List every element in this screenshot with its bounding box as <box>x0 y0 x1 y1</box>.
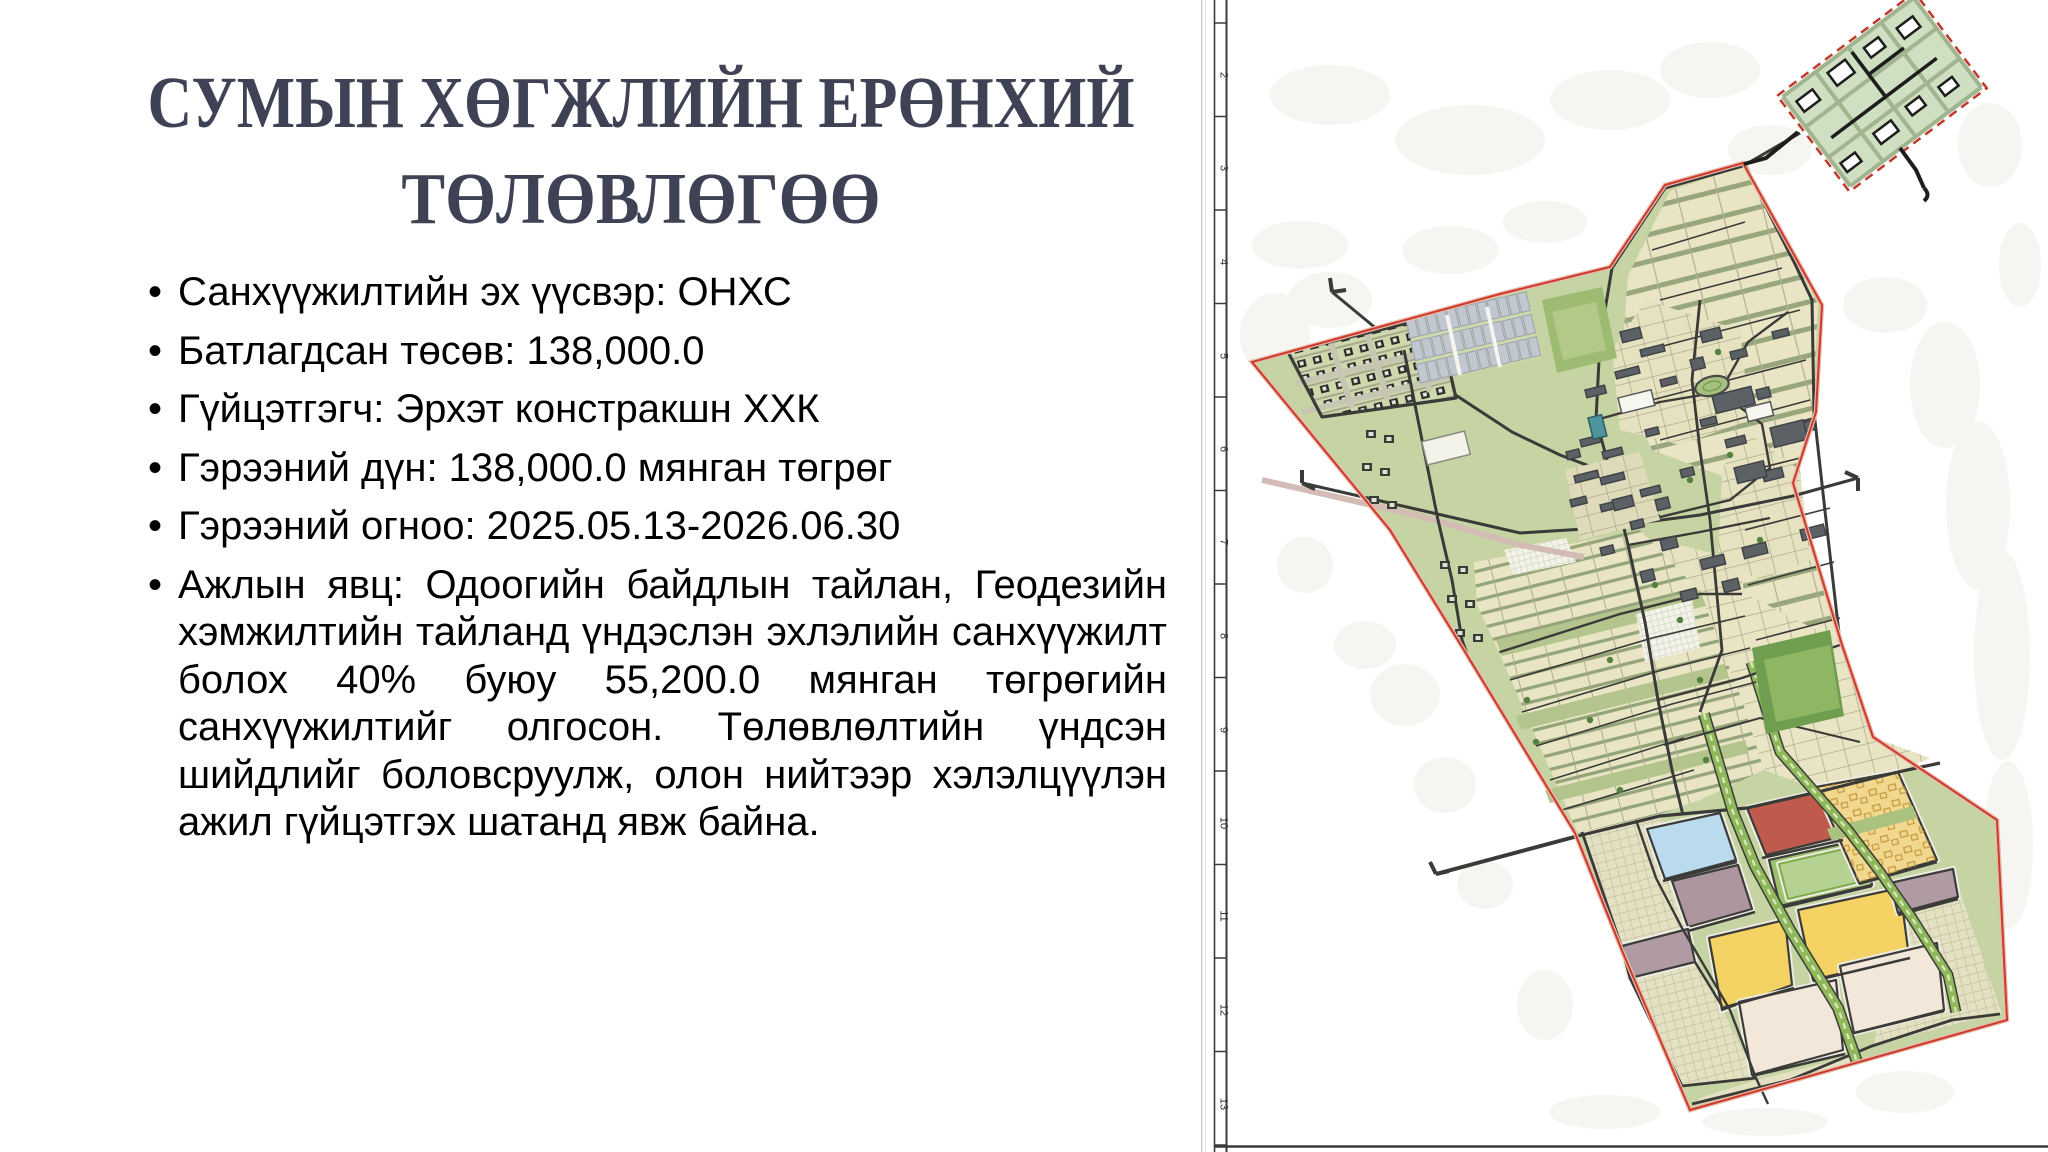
svg-text:13: 13 <box>1218 1098 1230 1110</box>
svg-text:9: 9 <box>1218 727 1230 733</box>
svg-text:11: 11 <box>1218 910 1230 921</box>
svg-text:5: 5 <box>1218 353 1230 359</box>
svg-text:6: 6 <box>1218 446 1230 452</box>
svg-text:3: 3 <box>1218 165 1230 171</box>
svg-text:12: 12 <box>1218 1004 1230 1016</box>
svg-text:4: 4 <box>1218 259 1230 265</box>
svg-text:8: 8 <box>1218 633 1230 639</box>
svg-text:7: 7 <box>1218 539 1230 545</box>
svg-text:10: 10 <box>1218 817 1230 829</box>
svg-text:2: 2 <box>1218 72 1230 78</box>
